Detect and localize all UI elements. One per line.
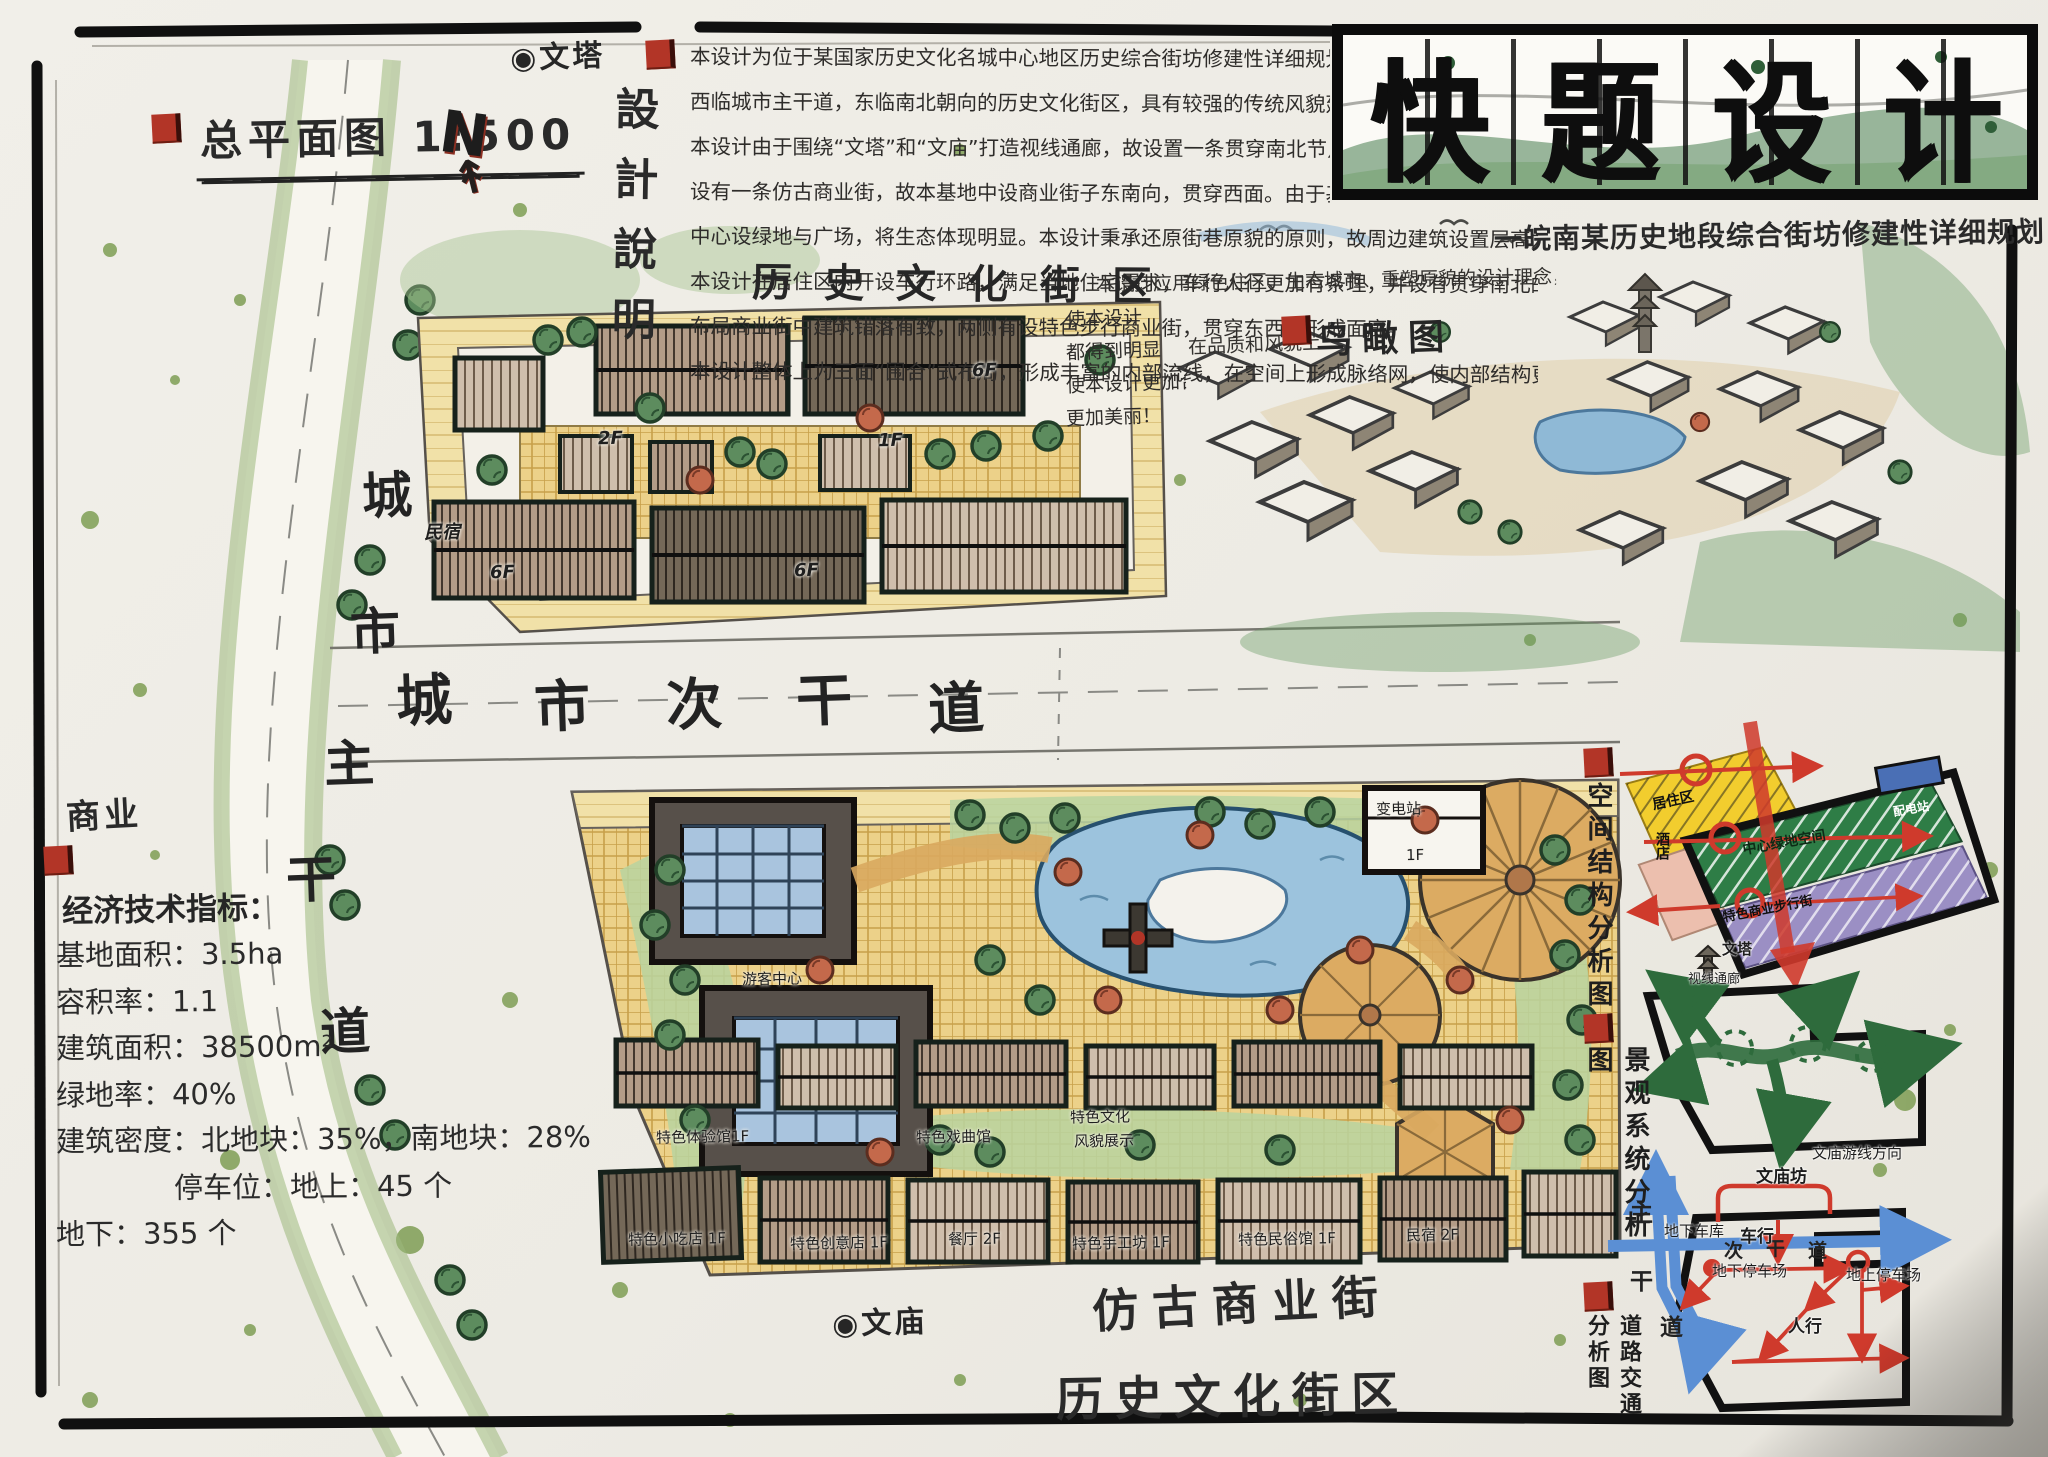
indicator-line: 容积率：1.1 — [56, 974, 616, 1025]
south-district-label: 历史文化街区 — [1055, 1355, 1410, 1430]
north-district-label: 历史文化街区 — [752, 250, 1184, 312]
note-line: 本设计为位于某国家历史文化名城中心地区历史综合街坊修建性详细规划，占地面积共3.… — [690, 35, 1330, 83]
road-traffic-diagram — [1600, 1170, 2048, 1450]
pagoda-label: 文塔 — [1722, 938, 1752, 959]
note-line: 使本设计更加合理 — [1065, 366, 1186, 403]
indicator-line: 地下：355 个 — [56, 1207, 616, 1258]
section-chip — [1583, 747, 1613, 777]
aerial-view-label: 鸟瞰图 — [1315, 308, 1455, 365]
indicators-list: 基地面积：3.5ha容积率：1.1建筑面积：38500m²绿地率：40%建筑密度… — [56, 930, 616, 1256]
subtitle: 一皖南某历史地段综合街坊修建性详细规划 — [1494, 210, 2047, 258]
sightline-label: 视线通廊 — [1688, 968, 1740, 987]
design-notes-title: 設計說明 — [595, 85, 665, 416]
indicator-line: 停车位：地上：45 个 — [174, 1161, 616, 1211]
main-title-char: 快 — [1369, 16, 1487, 208]
main-title-char: 计 — [1882, 16, 2000, 208]
section-chip — [43, 845, 73, 875]
commercial-label: 商业 — [65, 786, 143, 839]
aerial-note-column: 使本设计都得到明显使本设计更加合理更加美丽！ — [1066, 302, 1186, 434]
main-title: 快题设计 — [1343, 35, 2027, 189]
main-title-char: 题 — [1540, 16, 1658, 208]
pedestrian-route-label: 人行 — [1788, 1312, 1822, 1337]
note-line: 西临城市主干道，东临南北朝向的历史文化街区，具有较强的传统风貌延续条件优势。 — [690, 80, 1330, 128]
note-line: 本设计由于围绕“文塔”和“文庙”打造视线通廊，故设置一条贯穿南北节点的视线通廊。 — [690, 125, 1330, 173]
wenta-marker: ◉文塔 — [509, 30, 606, 77]
plan-title: 总平面图 1:500 — [195, 101, 585, 182]
hotel-band-label: 酒店 — [1652, 832, 1672, 860]
landscape-analysis-title: 景观系统分析图 — [1580, 1046, 1654, 1266]
temple-square-label: 文庙坊 — [1756, 1162, 1807, 1187]
indicator-line: 绿地率：40% — [56, 1067, 616, 1118]
wenmiao-marker: ◉文庙 — [831, 1296, 928, 1343]
main-title-char: 设 — [1711, 16, 1829, 208]
section-chip — [1583, 1281, 1613, 1311]
indicator-line: 基地面积：3.5ha — [56, 928, 616, 979]
traffic-analysis-title: 道路交通分析图 — [1580, 1314, 1644, 1434]
section-chip — [1281, 315, 1311, 345]
note-line: 都得到明显 — [1065, 333, 1186, 370]
section-chip — [151, 113, 181, 143]
presentation-board: 总平面图 1:500 N ↟ ◉文塔 設計說明 本设计为位于某国家历史文化名城中… — [0, 0, 2048, 1457]
note-line: 设有一条仿古商业街，故本基地中设商业街子东南向，贯穿西面。由于基地东南方向上侧为… — [690, 170, 1330, 218]
design-notes-paragraph-a: 本设计为位于某国家历史文化名城中心地区历史综合街坊修建性详细规划，占地面积共3.… — [690, 36, 1330, 216]
temple-direction-label: 文庙游线方向 — [1812, 1142, 1902, 1163]
vehicle-route-label: 车行 — [1740, 1222, 1774, 1247]
underground-parking-label: 地下停车场 — [1712, 1260, 1787, 1281]
indicator-line: 建筑面积：38500m² — [56, 1021, 616, 1072]
indicators-title: 经济技术指标： — [62, 882, 280, 931]
section-chip — [1583, 1013, 1613, 1043]
note-line: 更加美丽！ — [1065, 399, 1186, 436]
spatial-analysis-title: 空间结构分析图 — [1580, 782, 1617, 1018]
south-plan-drawing — [520, 700, 1650, 1310]
indicator-line: 建筑密度：北地块：35%，南地块：28% — [56, 1114, 616, 1165]
title-banner: 快题设计 — [1332, 24, 2038, 200]
landscape-system-diagram — [1620, 960, 2048, 1200]
section-chip — [645, 39, 675, 69]
surface-parking-label: 地上停车场 — [1846, 1264, 1921, 1285]
garage-label: 地下车库 — [1664, 1220, 1724, 1241]
